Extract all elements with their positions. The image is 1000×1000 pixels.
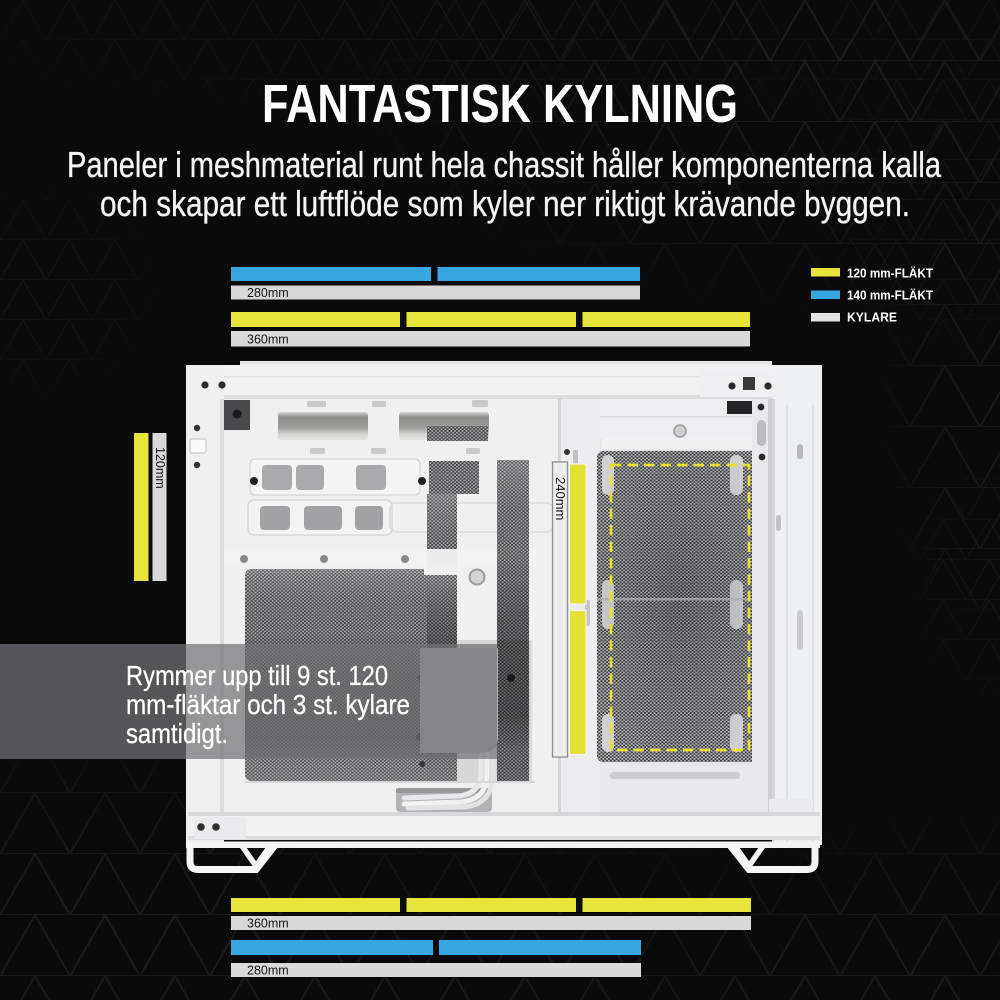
- svg-text:120mm: 120mm: [153, 447, 167, 489]
- svg-text:140 mm-FLÄKT: 140 mm-FLÄKT: [847, 288, 933, 303]
- svg-text:mm-fläktar och 3 st. kylare: mm-fläktar och 3 st. kylare: [126, 689, 410, 720]
- svg-text:360mm: 360mm: [247, 917, 289, 931]
- svg-text:Paneler i meshmaterial runt he: Paneler i meshmaterial runt hela chassit…: [67, 144, 942, 185]
- svg-text:240mm: 240mm: [553, 477, 568, 520]
- svg-text:280mm: 280mm: [247, 964, 289, 978]
- svg-text:280mm: 280mm: [247, 286, 289, 300]
- svg-text:KYLARE: KYLARE: [847, 310, 897, 325]
- svg-text:samtidigt.: samtidigt.: [126, 718, 228, 749]
- svg-text:och skapar ett luftflöde som k: och skapar ett luftflöde som kyler ner r…: [100, 183, 910, 224]
- svg-text:360mm: 360mm: [247, 332, 289, 346]
- svg-text:FANTASTISK KYLNING: FANTASTISK KYLNING: [262, 74, 738, 134]
- svg-text:120 mm-FLÄKT: 120 mm-FLÄKT: [847, 266, 933, 281]
- svg-text:Rymmer upp till 9 st. 120: Rymmer upp till 9 st. 120: [126, 660, 388, 691]
